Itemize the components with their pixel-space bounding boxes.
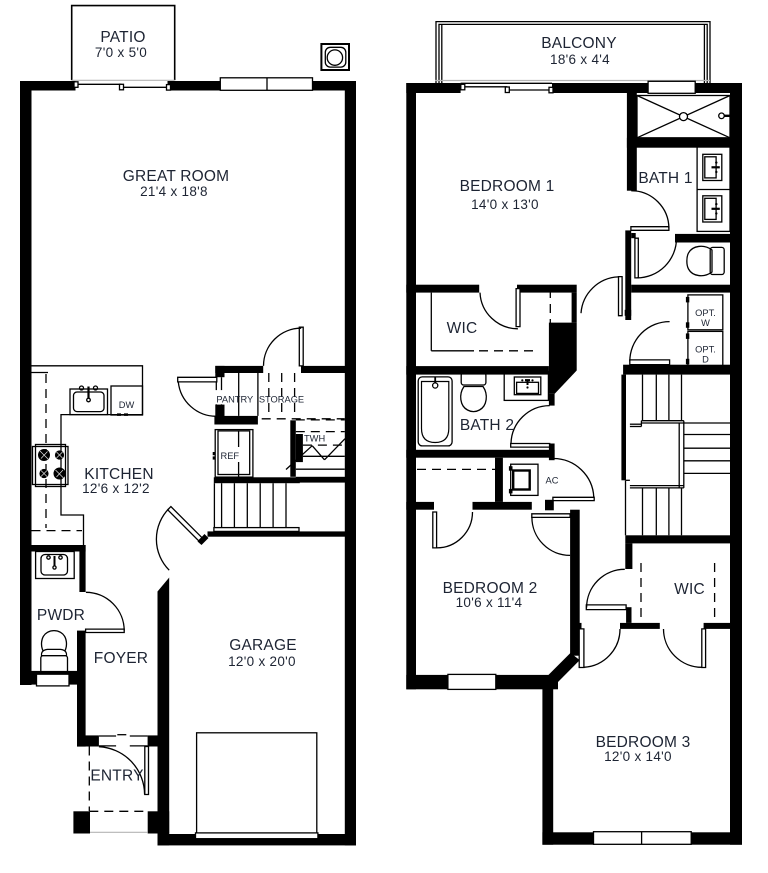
svg-text:BATH 1: BATH 1 [638, 170, 692, 187]
svg-text:7'0 x 5'0: 7'0 x 5'0 [95, 45, 147, 60]
svg-text:18'6 x 4'4: 18'6 x 4'4 [550, 52, 610, 67]
svg-text:D: D [702, 355, 709, 365]
svg-text:W: W [701, 318, 710, 328]
svg-text:WIC: WIC [674, 581, 705, 598]
svg-text:12'0 x 14'0: 12'0 x 14'0 [604, 749, 672, 764]
svg-text:WIC: WIC [447, 320, 478, 337]
svg-text:DW: DW [119, 400, 135, 410]
svg-text:OPT.: OPT. [695, 345, 716, 355]
svg-text:AC: AC [546, 476, 559, 486]
svg-text:PATIO: PATIO [100, 29, 145, 46]
svg-text:BATH 2: BATH 2 [460, 417, 514, 434]
svg-text:10'6 x 11'4: 10'6 x 11'4 [456, 595, 523, 610]
svg-text:BEDROOM 1: BEDROOM 1 [460, 178, 555, 195]
svg-text:PWDR: PWDR [37, 607, 85, 624]
svg-text:12'0 x 20'0: 12'0 x 20'0 [228, 654, 296, 669]
svg-text:OPT.: OPT. [695, 308, 716, 318]
svg-text:GREAT ROOM: GREAT ROOM [123, 168, 230, 185]
svg-text:21'4 x 18'8: 21'4 x 18'8 [140, 184, 208, 199]
svg-text:STORAGE: STORAGE [259, 394, 304, 404]
svg-text:GARAGE: GARAGE [229, 637, 297, 654]
svg-text:ENTRY: ENTRY [90, 768, 143, 785]
svg-text:PANTRY: PANTRY [216, 394, 253, 404]
svg-text:BALCONY: BALCONY [541, 35, 616, 52]
svg-text:14'0 x 13'0: 14'0 x 13'0 [471, 197, 539, 212]
svg-text:12'6 x 12'2: 12'6 x 12'2 [82, 481, 150, 496]
svg-text:REF: REF [221, 451, 240, 461]
svg-text:FOYER: FOYER [94, 650, 148, 667]
svg-text:TWH: TWH [304, 434, 325, 444]
